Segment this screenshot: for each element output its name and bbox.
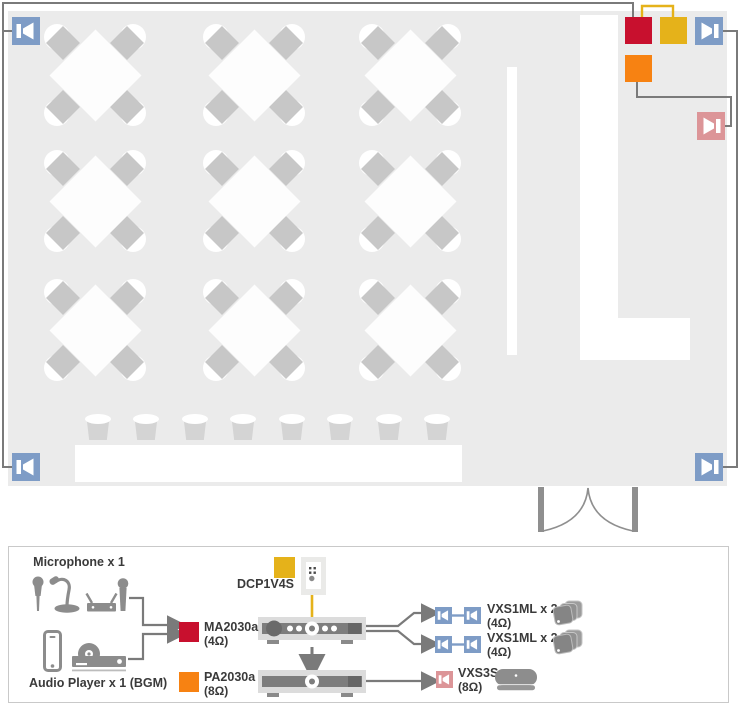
partition-wall <box>507 67 517 355</box>
door <box>538 487 638 532</box>
bar-stool <box>424 414 450 440</box>
ma2030a-swatch <box>179 622 199 642</box>
dining-table <box>30 10 160 140</box>
dining-table <box>345 10 475 140</box>
microphone-label: Microphone x 1 <box>31 556 127 569</box>
service-counter <box>618 318 690 360</box>
wall-speaker-icon-top-right <box>695 17 723 45</box>
bar-stool <box>230 414 256 440</box>
dining-table <box>189 265 319 395</box>
vxs3s-product-image <box>493 668 539 694</box>
vxs1ml-b-label: VXS1ML x 2 <box>487 632 558 645</box>
bar-stool <box>376 414 402 440</box>
vxs1ml-speaker-icon <box>435 607 452 624</box>
dining-table <box>189 136 319 266</box>
bar-stool <box>182 414 208 440</box>
audio-player-icons <box>45 632 127 672</box>
ma2030a-impedance: (4Ω) <box>204 634 228 648</box>
vxs1ml-speaker-icon <box>464 636 481 653</box>
dining-table <box>30 136 160 266</box>
bar-counter <box>75 445 462 482</box>
pa2030a-impedance: (8Ω) <box>204 684 228 698</box>
service-counter <box>580 15 618 360</box>
bar-stool <box>327 414 353 440</box>
system-diagram: Microphone x 1 Audio Player x 1 (BGM) DC… <box>8 546 729 703</box>
ma2030a-label: MA2030a <box>204 621 258 634</box>
vxs1ml-a-impedance: (4Ω) <box>487 616 511 630</box>
ma2030a-amplifier <box>258 617 366 644</box>
dining-table <box>345 136 475 266</box>
vxs1ml-a-label: VXS1ML x 2 <box>487 603 558 616</box>
dining-table <box>189 10 319 140</box>
vxs3s-impedance: (8Ω) <box>458 680 482 694</box>
wall-speaker-icon-top-left <box>12 17 40 45</box>
microphone-icons <box>33 575 129 613</box>
page: Microphone x 1 Audio Player x 1 (BGM) DC… <box>0 0 740 704</box>
vxs1ml-product-image <box>553 600 585 628</box>
bar-stool <box>279 414 305 440</box>
bar-stool <box>133 414 159 440</box>
vxs1ml-speaker-icon <box>464 607 481 624</box>
surface-speaker-icon <box>697 112 725 140</box>
dcp1v4s-marker <box>660 17 687 44</box>
wall-speaker-icon-bottom-left <box>12 453 40 481</box>
dining-table <box>345 265 475 395</box>
ma2030a-marker <box>625 17 652 44</box>
pa2030a-label: PA2030a <box>204 671 255 684</box>
dcp1v4s-swatch <box>274 557 295 578</box>
wall-control-panel <box>301 557 326 595</box>
pa2030a-swatch <box>179 672 199 692</box>
dcp1v4s-label: DCP1V4S <box>209 578 294 591</box>
vxs1ml-product-image <box>553 629 585 657</box>
audio-player-label: Audio Player x 1 (BGM) <box>29 677 155 690</box>
vxs1ml-b-impedance: (4Ω) <box>487 645 511 659</box>
bar-stool <box>85 414 111 440</box>
pa2030a-amplifier <box>258 670 366 697</box>
wall-speaker-icon-bottom-right <box>695 453 723 481</box>
pa2030a-marker <box>625 55 652 82</box>
vxs1ml-speaker-icon <box>435 636 452 653</box>
vxs3s-speaker-icon <box>436 671 453 688</box>
dining-table <box>30 265 160 395</box>
